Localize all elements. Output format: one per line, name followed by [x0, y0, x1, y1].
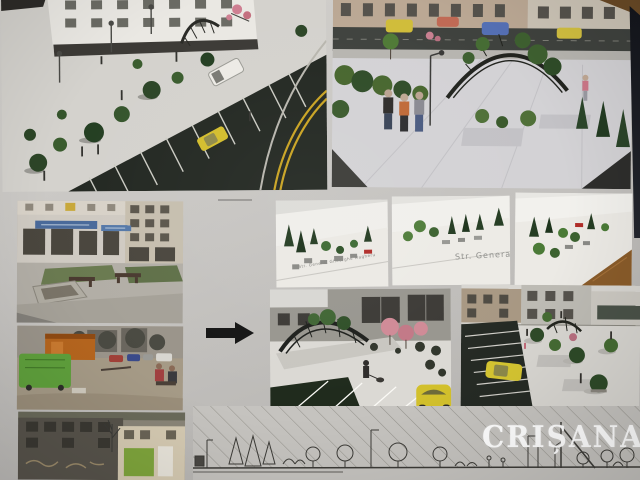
green-storefront: [124, 448, 154, 476]
model-maquette-left: [276, 200, 389, 288]
people-group: [383, 89, 424, 131]
render-street-level-plaza: [332, 0, 632, 189]
right-arrow-icon: [206, 321, 256, 345]
photo-existing-shops-benches: [17, 201, 184, 324]
crisana-watermark: CRIȘANA: [482, 419, 640, 455]
transformation-arrow: [206, 321, 256, 345]
green-dumpster: [19, 354, 71, 391]
render-aerial2-illustration: [461, 284, 640, 407]
render-aerial-parking-plaza: [1, 0, 327, 192]
photo-existing-building-facade: [18, 412, 185, 480]
render-plaza-pergola: [270, 289, 452, 414]
site-photo-b: [17, 326, 183, 411]
site-photo-c: [18, 412, 185, 480]
maquette-photo-3: [515, 192, 633, 286]
site-photo-a: [17, 201, 184, 324]
building-left: [461, 288, 521, 322]
render-street-illustration: [332, 0, 632, 189]
render-pergola-illustration: [270, 289, 452, 414]
red-model-car: [575, 223, 583, 227]
maquette-photo-2: [392, 196, 511, 286]
photo-existing-dumpster-kiosk: [17, 326, 183, 411]
pink-equipment: [569, 333, 577, 341]
model-maquette-center: [392, 196, 511, 286]
presentation-board: Str. General Gheorghe Magheru Str. Gener…: [0, 0, 640, 480]
render-aerial-illustration: [1, 0, 327, 192]
maquette-photo-1: [276, 200, 389, 288]
fold-mark: [218, 199, 252, 201]
render-aerial-yellow-car: [461, 284, 640, 407]
small-tree: [383, 33, 399, 49]
model-maquette-right: [515, 192, 633, 286]
white-door: [158, 446, 173, 476]
